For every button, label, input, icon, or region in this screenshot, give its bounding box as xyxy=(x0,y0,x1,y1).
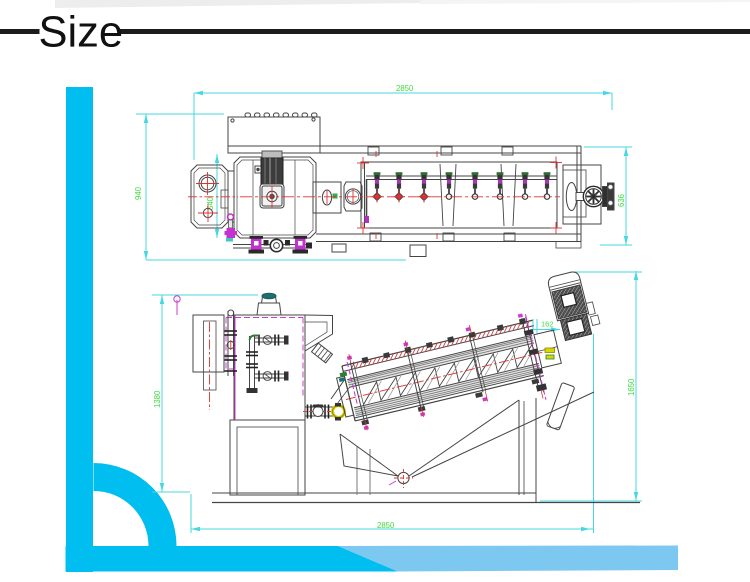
svg-text:Size: Size xyxy=(39,9,124,57)
svg-text:1650: 1650 xyxy=(627,378,636,396)
svg-text:1380: 1380 xyxy=(153,390,162,408)
svg-text:162: 162 xyxy=(541,320,554,329)
svg-text:940: 940 xyxy=(134,186,143,200)
svg-text:2850: 2850 xyxy=(377,521,395,530)
svg-text:2850: 2850 xyxy=(396,84,414,93)
svg-text:636: 636 xyxy=(617,194,626,207)
